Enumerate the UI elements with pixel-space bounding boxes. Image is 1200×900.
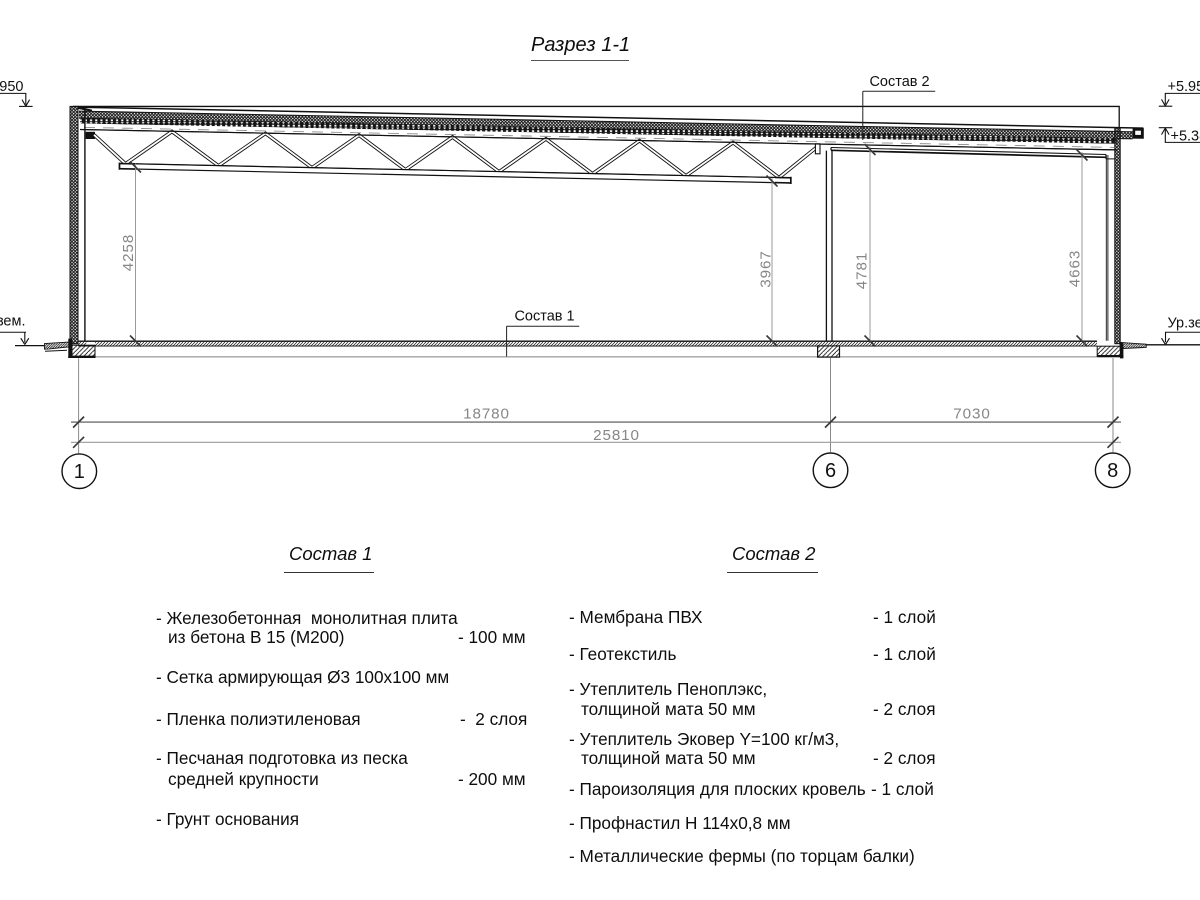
svg-text:18780: 18780 [463,405,510,422]
svg-text:4258: 4258 [120,234,137,271]
svg-text:7030: 7030 [953,405,990,422]
svg-text:1: 1 [74,461,85,483]
svg-text:4781: 4781 [854,252,871,289]
svg-text:Ур.зем.: Ур.зем. [1168,316,1200,332]
svg-text:Состав 1: Состав 1 [514,308,574,324]
svg-text:+5.950: +5.950 [1168,79,1200,95]
svg-text:25810: 25810 [593,427,640,444]
svg-text:8: 8 [1107,460,1118,482]
svg-text:Ур.зем.: Ур.зем. [0,314,26,330]
svg-text:3967: 3967 [758,250,775,287]
svg-text:4663: 4663 [1067,250,1084,287]
svg-text:Состав 2: Состав 2 [869,74,929,90]
svg-text:6: 6 [825,460,836,482]
svg-text:+4.950: +4.950 [0,79,24,95]
